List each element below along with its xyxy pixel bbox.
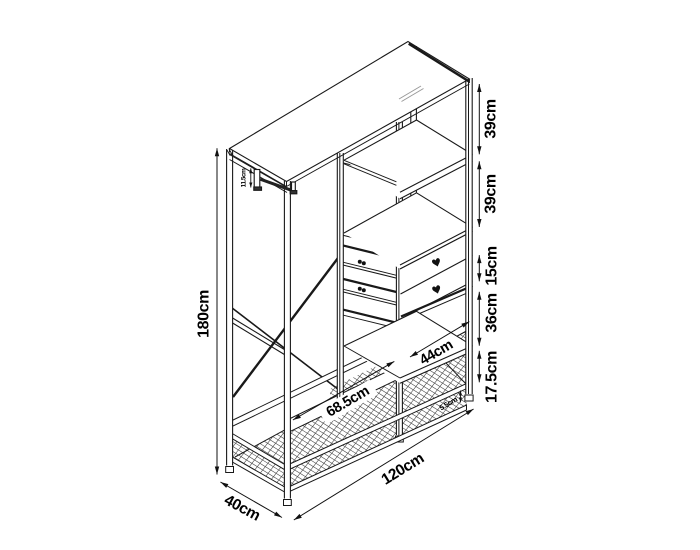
svg-text:180cm: 180cm [196, 290, 213, 338]
svg-text:39cm: 39cm [483, 99, 500, 138]
svg-text:15cm: 15cm [484, 246, 501, 285]
svg-text:11.5cm: 11.5cm [241, 168, 248, 187]
svg-text:17.5cm: 17.5cm [484, 351, 501, 403]
svg-text:39cm: 39cm [483, 174, 500, 213]
svg-text:36cm: 36cm [484, 293, 501, 332]
